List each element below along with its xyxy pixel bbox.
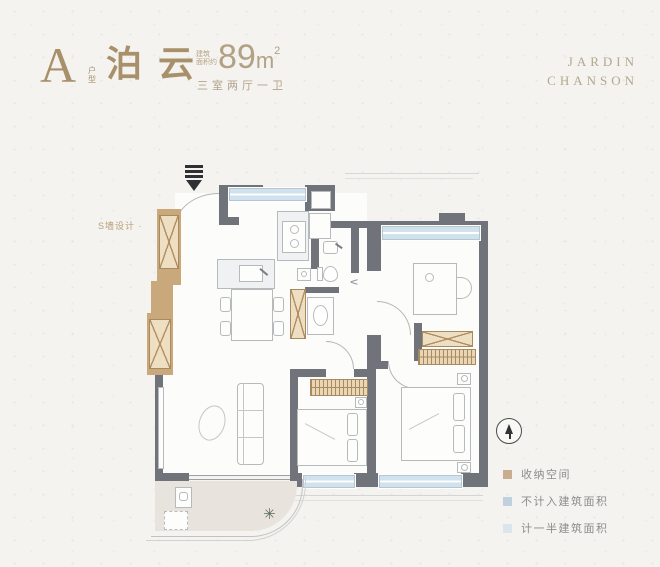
dining-chair <box>273 321 284 336</box>
nightstand-lamp-icon <box>461 375 468 382</box>
storage-closet-icon <box>422 331 473 347</box>
entrance-marker-icon <box>185 175 203 178</box>
legend-swatch-storage <box>503 470 512 479</box>
legend-label: 计一半建筑面积 <box>521 520 609 536</box>
wall <box>219 217 239 225</box>
storage-closet-icon <box>149 319 171 369</box>
exterior-line <box>345 173 479 174</box>
wall-east <box>479 221 488 487</box>
wall-south <box>461 473 481 487</box>
bathroom-door-icon: ∧ <box>346 278 360 287</box>
brand-line1: JARDIN <box>547 52 638 71</box>
legend-label: 收纳空间 <box>521 466 571 482</box>
burner-icon <box>290 225 299 234</box>
area-unit: m <box>256 48 274 73</box>
balcony-cabinet <box>164 511 188 530</box>
balcony-railing-line <box>146 477 306 541</box>
wall-bedroom1-top <box>298 369 326 377</box>
desk-lamp-icon <box>425 273 434 282</box>
wall <box>439 213 465 221</box>
compass-north-icon <box>496 418 522 444</box>
area-value: 89 <box>218 38 256 76</box>
area-figure: 89m2 <box>218 40 280 74</box>
plan-name: 泊云 <box>106 46 210 82</box>
window-bedroom1 <box>302 474 356 489</box>
legend-swatch-excluded-area <box>503 497 512 506</box>
dining-chair <box>273 297 284 312</box>
wardrobe-icon <box>310 379 368 396</box>
compass-stem-icon <box>509 433 511 439</box>
washer-door-icon <box>179 492 188 501</box>
wall-south <box>354 473 378 487</box>
storage-wall <box>151 281 173 317</box>
plant-icon: ✳ <box>263 505 276 523</box>
nightstand-lamp-icon <box>358 399 364 405</box>
s-wall-design-note: S墙设计 · <box>98 219 143 232</box>
water-heater-dial-icon <box>301 271 307 277</box>
exterior-line <box>345 178 473 179</box>
wall-niche <box>311 191 331 209</box>
brand-logo: JARDIN CHANSON <box>547 52 638 90</box>
wall-bedrooms-separator <box>367 369 376 475</box>
floor-plan: ∧ ✳ <box>145 163 493 555</box>
toilet-bowl-icon <box>323 266 338 282</box>
pillow-icon <box>347 413 358 436</box>
tv-console <box>158 387 164 469</box>
burner-icon <box>290 239 299 248</box>
dining-chair <box>220 297 231 312</box>
area-note-line2: 面积约 <box>196 59 217 67</box>
dining-chair <box>220 321 231 336</box>
unit-type-letter: A <box>40 40 76 90</box>
rooms-summary: 三室两厅一卫 <box>197 77 287 93</box>
exterior-sill-line <box>295 495 483 496</box>
legend: 收纳空间 不计入建筑面积 计一半建筑面积 <box>503 466 609 547</box>
sofa-back-line <box>243 383 244 465</box>
wall-bedroom2-top <box>376 361 388 369</box>
pillow-icon <box>453 393 465 421</box>
vanity-basin-icon <box>313 305 328 326</box>
entrance-marker-icon <box>185 165 203 168</box>
wall <box>329 221 369 228</box>
sofa-cushion-line <box>237 410 264 411</box>
entrance-marker-icon <box>185 170 203 173</box>
refrigerator-icon <box>309 213 331 239</box>
sofa-cushion-line <box>237 437 264 438</box>
storage-closet-icon <box>290 289 306 339</box>
pillow-icon <box>453 425 465 453</box>
exterior-sill-line <box>295 500 483 501</box>
entrance-arrow-icon <box>186 180 202 191</box>
storage-closet-icon <box>159 215 179 269</box>
brand-line2: CHANSON <box>547 71 638 90</box>
wall <box>305 287 339 293</box>
sliding-door-line <box>189 475 290 476</box>
dining-table <box>231 289 273 341</box>
area-note: 建筑 面积约 <box>196 51 217 67</box>
sofa <box>237 383 264 465</box>
window-kitchen <box>228 187 307 202</box>
legend-label: 不计入建筑面积 <box>521 493 609 509</box>
window-bedroom2 <box>378 474 463 489</box>
legend-item-excluded-area: 不计入建筑面积 <box>503 493 609 509</box>
area-note-line1: 建筑 <box>196 51 217 59</box>
nightstand-lamp-icon <box>461 464 468 471</box>
wall-bedroom1-top <box>354 369 367 377</box>
wall-bathroom <box>351 225 359 273</box>
area-exponent: 2 <box>274 45 280 57</box>
legend-item-storage: 收纳空间 <box>503 466 609 482</box>
unit-type-label: 户型 <box>88 66 98 84</box>
pillow-icon <box>347 439 358 462</box>
wardrobe-icon <box>418 349 476 365</box>
desk <box>413 263 457 315</box>
window-study <box>381 225 481 241</box>
legend-swatch-half-area <box>503 524 512 533</box>
legend-item-half-area: 计一半建筑面积 <box>503 520 609 536</box>
